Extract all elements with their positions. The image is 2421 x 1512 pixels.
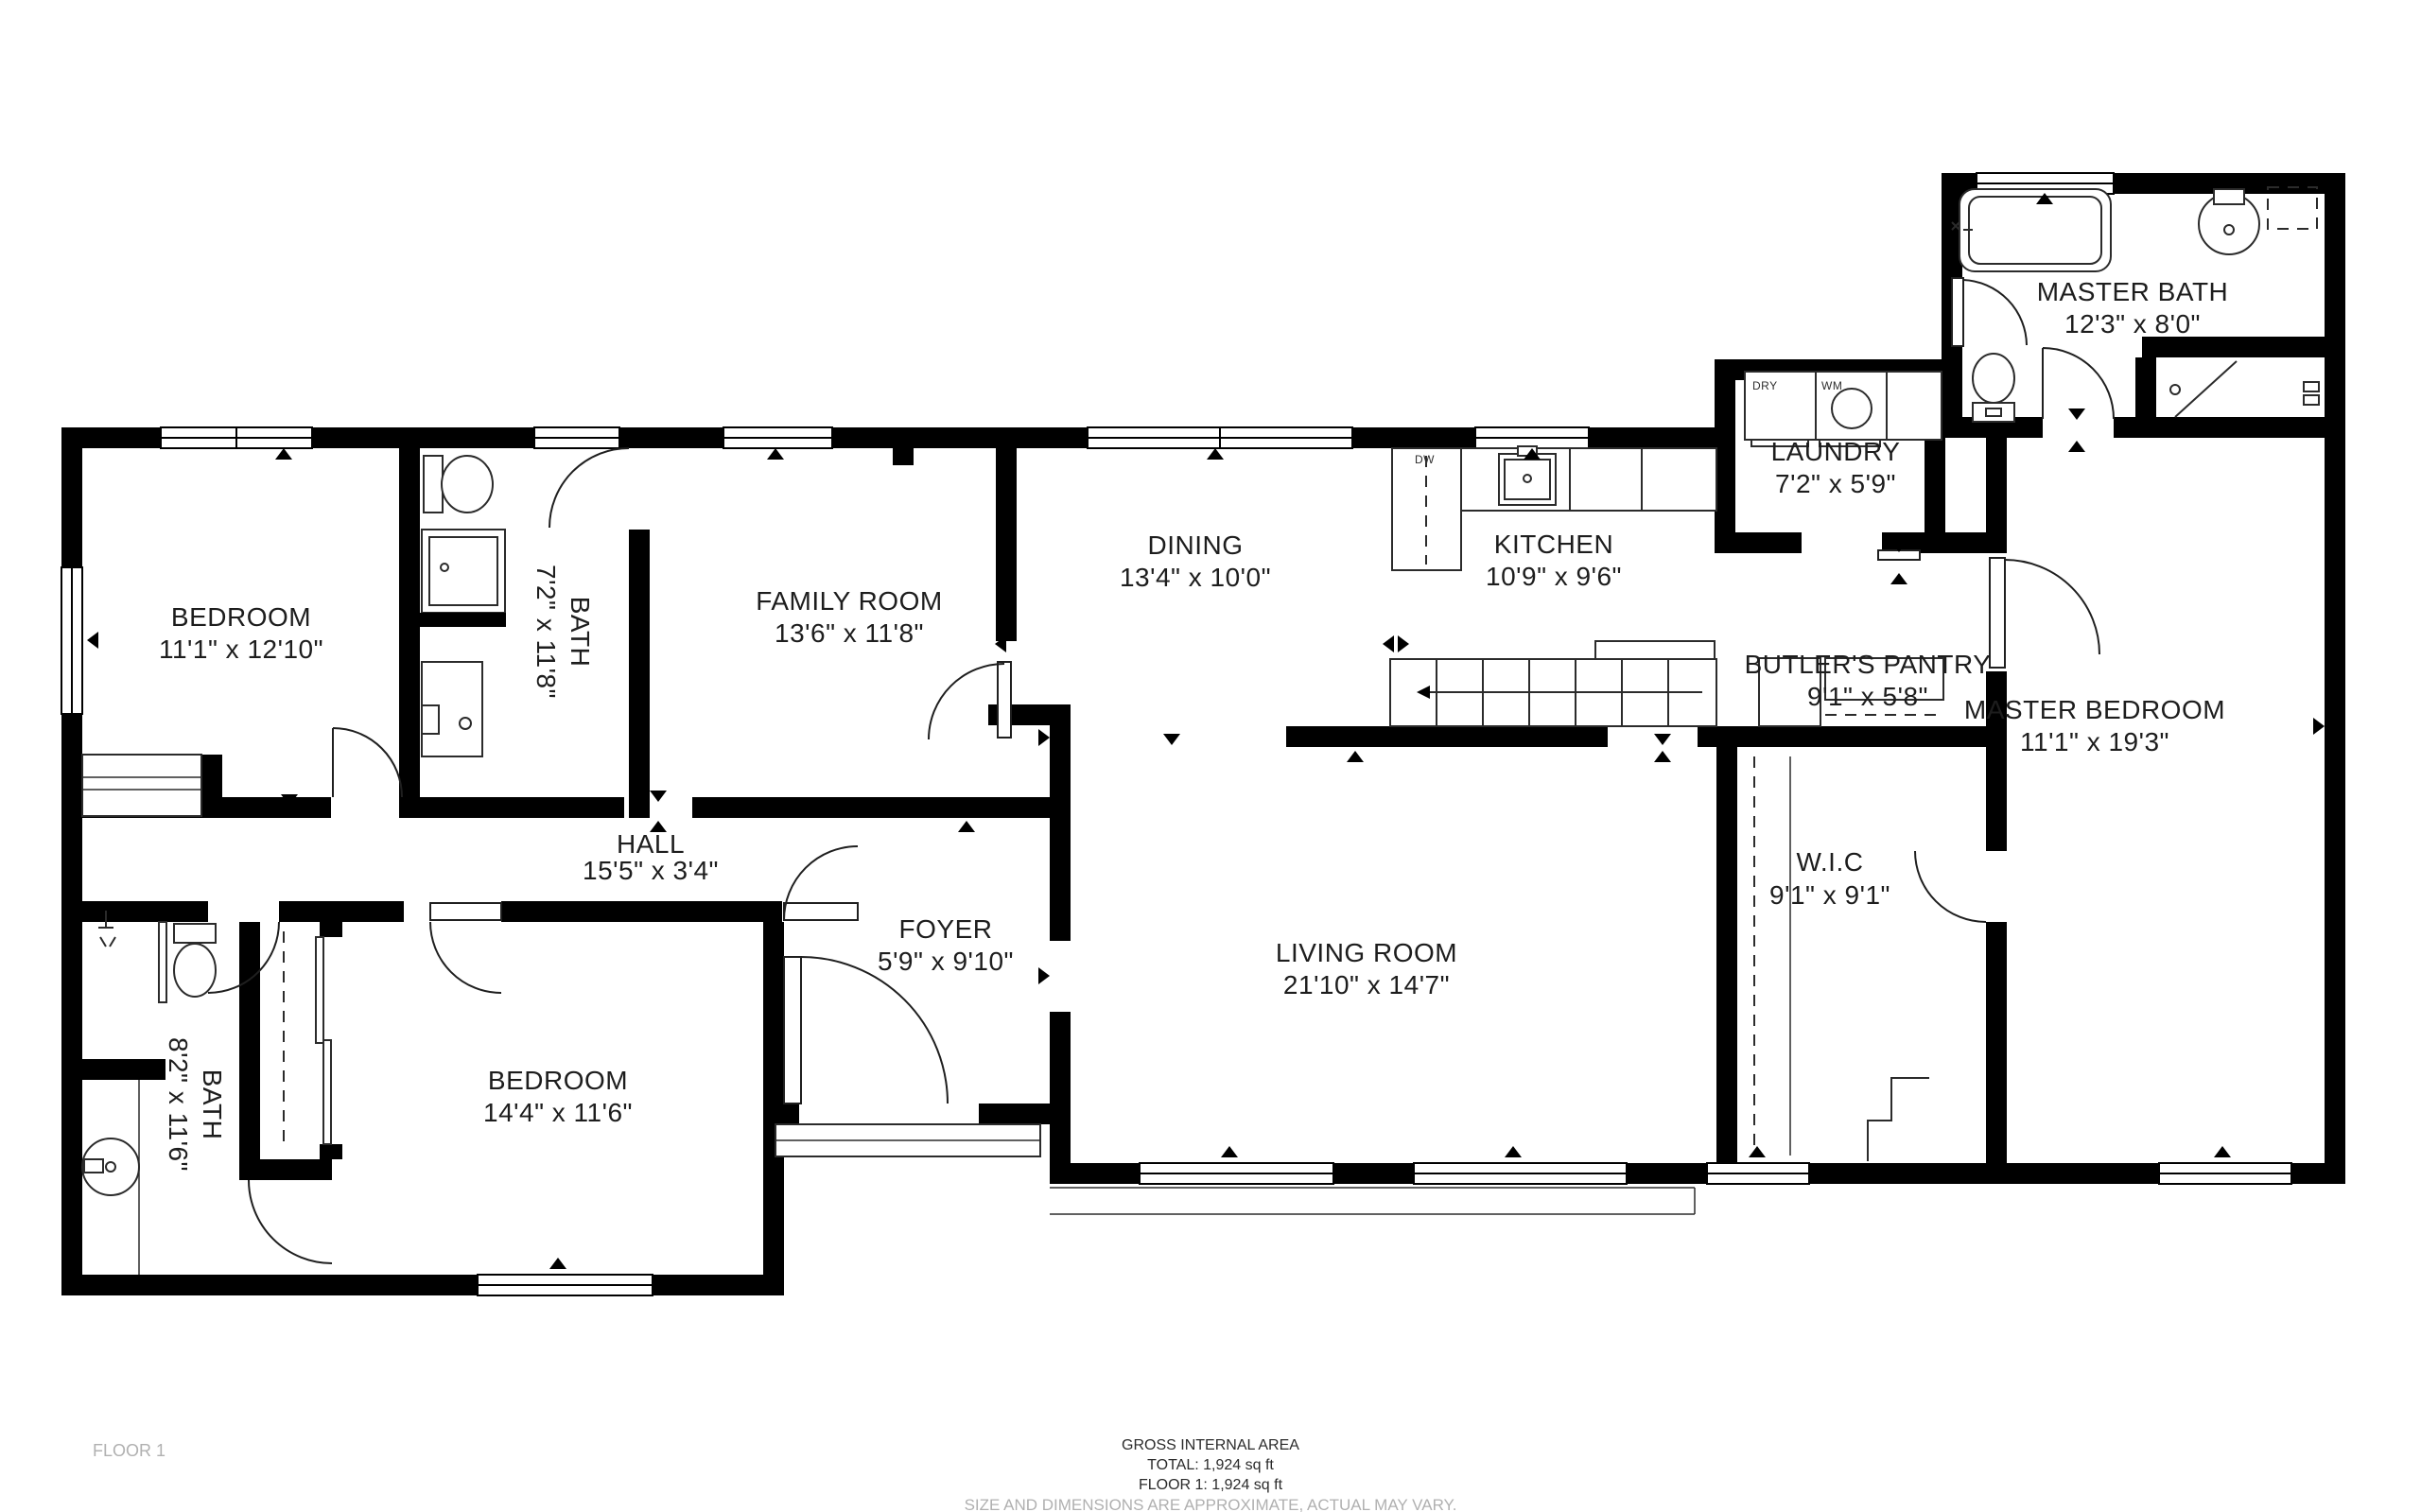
room-name-bedroom-lower: BEDROOM — [488, 1066, 628, 1095]
room-dims-bath-lower: 8'2" x 11'6" — [164, 1037, 193, 1172]
room-dims-laundry: 7'2" x 5'9" — [1775, 469, 1896, 498]
room-label-bath-upper: BATH7'2" x 11'8" — [531, 565, 595, 699]
room-name-wic: W.I.C — [1797, 847, 1864, 877]
shower-glass — [159, 922, 166, 1002]
footer-disclaimer: SIZE AND DIMENSIONS ARE APPROXIMATE, ACT… — [0, 1495, 2421, 1512]
room-dims-bedroom-left: 11'1" x 12'10" — [159, 634, 323, 664]
room-name-butlers-pantry: BUTLER'S PANTRY — [1745, 650, 1992, 679]
footer-title: GROSS INTERNAL AREA — [0, 1435, 2421, 1455]
kitchen-sink — [1499, 454, 1556, 505]
room-dims-hall: 15'5" x 3'4" — [583, 856, 719, 885]
room-name-bath-upper: BATH — [566, 597, 595, 668]
toilet-tank — [424, 456, 443, 513]
toilet — [174, 944, 216, 997]
sliding-door — [316, 937, 323, 1043]
footer-total: TOTAL: 1,924 sq ft — [0, 1455, 2421, 1475]
room-name-hall: HALL — [617, 829, 685, 859]
room-dims-dining: 13'4" x 10'0" — [1120, 563, 1271, 592]
window — [478, 1275, 653, 1295]
room-name-bedroom-left: BEDROOM — [171, 602, 311, 632]
window — [1475, 427, 1589, 448]
bath-lower-fixtures — [82, 911, 216, 1275]
washer-label: WM — [1821, 379, 1842, 392]
floor-plan-drawing: MASTER BATH12'3" x 8'0"LAUNDRY7'2" x 5'9… — [0, 0, 2421, 1512]
toilet — [442, 456, 493, 513]
footer: GROSS INTERNAL AREA TOTAL: 1,924 sq ft F… — [0, 1435, 2421, 1512]
room-dims-family-room: 13'6" x 11'8" — [775, 618, 924, 648]
dishwasher-label: DW — [1415, 453, 1435, 466]
room-name-master-bedroom: MASTER BEDROOM — [1964, 695, 2225, 724]
room-dims-butlers-pantry: 9'1" x 5'8" — [1807, 682, 1928, 711]
window — [1140, 1163, 1333, 1184]
shower — [2175, 361, 2237, 417]
room-name-master-bath: MASTER BATH — [2037, 277, 2229, 306]
stair-landing-shelf — [1595, 641, 1715, 659]
shower — [422, 530, 505, 613]
toilet — [1973, 354, 2014, 403]
room-dims-kitchen: 10'9" x 9'6" — [1486, 562, 1622, 591]
room-dims-master-bath: 12'3" x 8'0" — [2064, 309, 2201, 339]
window — [723, 427, 832, 448]
room-name-kitchen: KITCHEN — [1494, 530, 1613, 559]
room-name-foyer: FOYER — [899, 914, 993, 944]
bedroom-left-closet — [82, 755, 201, 816]
bath-upper-fixtures — [420, 456, 506, 756]
window — [1414, 1163, 1627, 1184]
window — [61, 567, 82, 714]
floor-plan-page: MASTER BATH12'3" x 8'0"LAUNDRY7'2" x 5'9… — [0, 0, 2421, 1512]
room-dims-bedroom-lower: 14'4" x 11'6" — [483, 1098, 633, 1127]
room-dims-living-room: 21'10" x 14'7" — [1283, 970, 1450, 999]
stairs — [1390, 641, 1716, 726]
room-name-family-room: FAMILY ROOM — [756, 586, 942, 616]
window — [1707, 1163, 1809, 1184]
dryer-label: DRY — [1752, 379, 1778, 392]
room-dims-foyer: 5'9" x 9'10" — [878, 947, 1014, 976]
room-dims-master-bedroom: 11'1" x 19'3" — [2020, 727, 2169, 756]
walls — [61, 173, 2345, 1295]
window — [161, 427, 312, 448]
toilet-tank — [174, 924, 216, 943]
room-name-laundry: LAUNDRY — [1771, 437, 1901, 466]
window — [534, 427, 619, 448]
window — [1088, 427, 1352, 448]
bedroom-lower-closet — [284, 931, 331, 1144]
window — [2159, 1163, 2291, 1184]
wic-steps — [1868, 1078, 1929, 1161]
room-name-bath-lower: BATH — [198, 1069, 227, 1140]
shower-head — [2170, 385, 2180, 394]
rear-porch-line — [1050, 1188, 1695, 1214]
room-name-living-room: LIVING ROOM — [1276, 938, 1457, 967]
room-name-dining: DINING — [1148, 530, 1244, 560]
room-dims-wic: 9'1" x 9'1" — [1769, 880, 1890, 910]
sliding-door — [323, 1040, 331, 1144]
entry-step — [775, 1124, 1040, 1156]
wic-details — [1754, 756, 1929, 1161]
footer-floor: FLOOR 1: 1,924 sq ft — [0, 1475, 2421, 1495]
room-dims-bath-upper: 7'2" x 11'8" — [531, 565, 561, 699]
room-label-bath-lower: BATH8'2" x 11'6" — [164, 1037, 227, 1172]
